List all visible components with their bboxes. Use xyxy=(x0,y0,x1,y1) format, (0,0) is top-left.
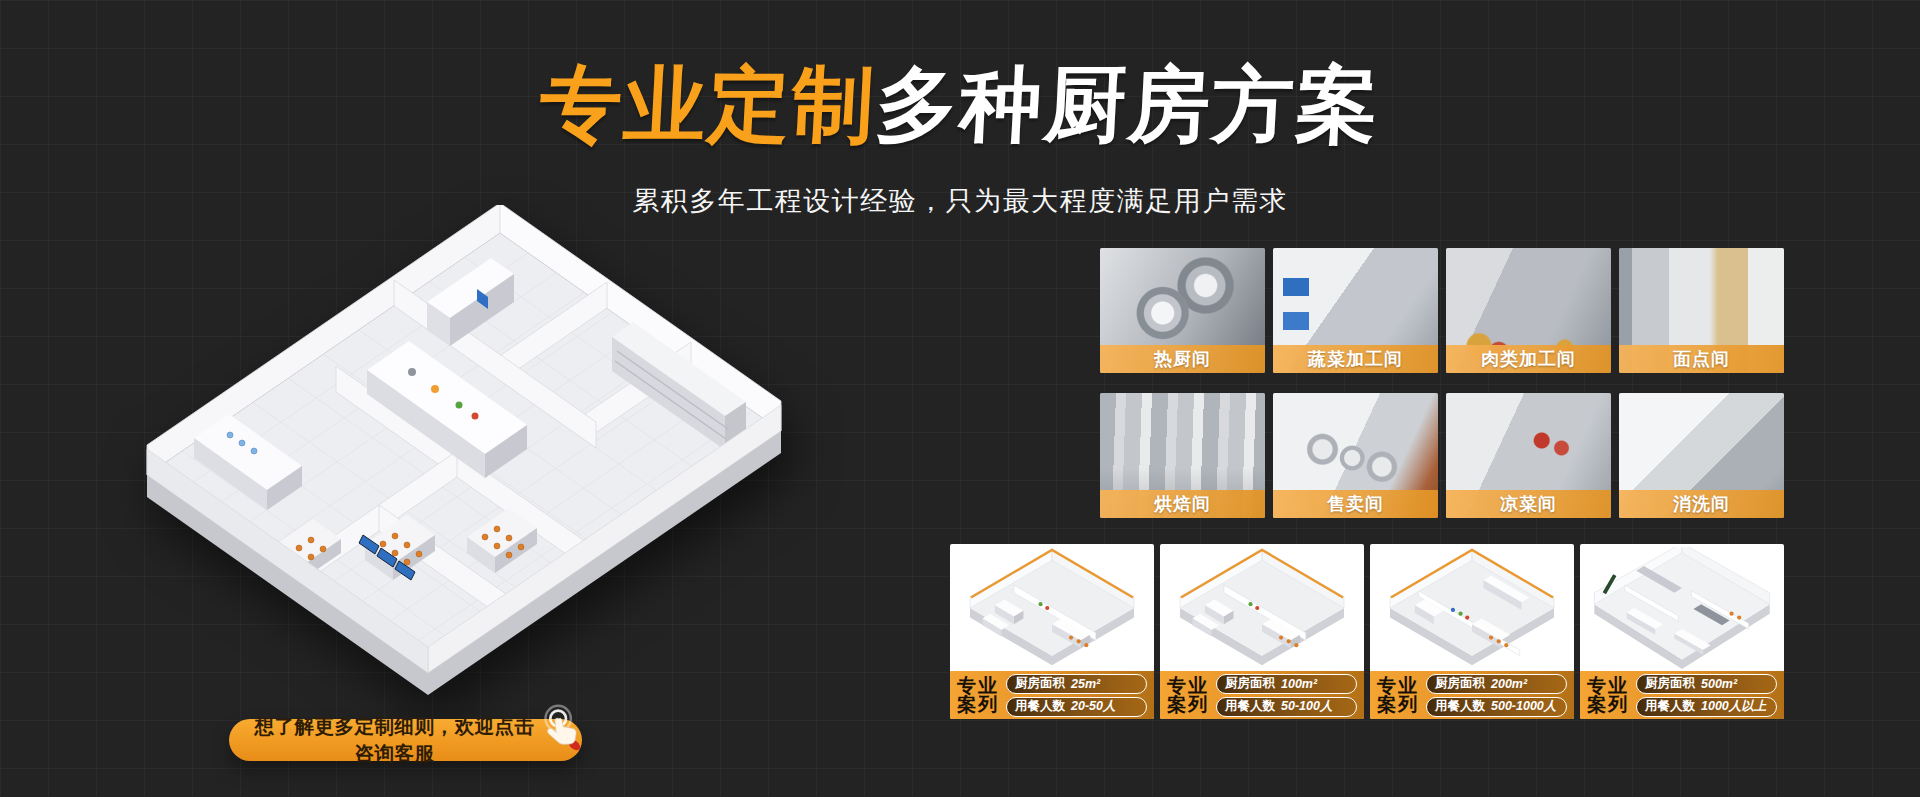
case-card-25: 专业案列 厨房面积25m² 用餐人数20-50人 xyxy=(950,544,1154,719)
case-badge-line: 专业 xyxy=(1377,676,1419,695)
kitchen-solutions-banner: 专业定制多种厨房方案 累积多年工程设计经验，只为最大程度满足用户需求 xyxy=(0,0,1920,797)
spec-label: 厨房面积 xyxy=(1225,675,1275,692)
case-render xyxy=(950,544,1154,671)
case-badge: 专业案列 xyxy=(1587,676,1629,715)
room-tile-pastry: 面点间 xyxy=(1619,248,1784,373)
room-tile-baking: 烘焙间 xyxy=(1100,393,1265,518)
case-badge: 专业案列 xyxy=(957,676,999,715)
spec-label: 厨房面积 xyxy=(1015,675,1065,692)
spec-label: 用餐人数 xyxy=(1645,698,1695,715)
case-badge-line: 案列 xyxy=(1587,695,1629,714)
floorplan-illustration xyxy=(125,205,805,735)
case-badge: 专业案列 xyxy=(1167,676,1209,715)
case-badge-line: 专业 xyxy=(1167,676,1209,695)
spec-value: 100m² xyxy=(1281,677,1317,691)
case-gallery: 专业案列 厨房面积25m² 用餐人数20-50人 xyxy=(950,544,1784,719)
case-card-200: 专业案列 厨房面积200m² 用餐人数500-1000人 xyxy=(1370,544,1574,719)
room-tile-meat-processing: 肉类加工间 xyxy=(1446,248,1611,373)
diners-pill: 用餐人数500-1000人 xyxy=(1426,697,1567,717)
room-label: 凉菜间 xyxy=(1446,490,1611,518)
case-badge-line: 案列 xyxy=(1167,695,1209,714)
case-card-100: 专业案列 厨房面积100m² 用餐人数50-100人 xyxy=(1160,544,1364,719)
isometric-kitchen-floorplan xyxy=(125,205,805,735)
kitchen-area-pill: 厨房面积200m² xyxy=(1426,674,1567,694)
case-footer: 专业案列 厨房面积200m² 用餐人数500-1000人 xyxy=(1370,671,1574,719)
room-label: 售卖间 xyxy=(1273,490,1438,518)
room-label: 消洗间 xyxy=(1619,490,1784,518)
page-title-rest: 多种厨房方案 xyxy=(874,59,1383,150)
spec-value: 50-100人 xyxy=(1281,698,1332,715)
kitchen-area-pill: 厨房面积100m² xyxy=(1216,674,1357,694)
case-badge-line: 专业 xyxy=(957,676,999,695)
room-label: 烘焙间 xyxy=(1100,490,1265,518)
room-tile-vegetable-processing: 蔬菜加工间 xyxy=(1273,248,1438,373)
spec-value: 25m² xyxy=(1071,677,1100,691)
hand-click-icon xyxy=(534,704,592,762)
room-tile-serving: 售卖间 xyxy=(1273,393,1438,518)
diners-pill: 用餐人数20-50人 xyxy=(1006,697,1147,717)
isometric-kitchen-render xyxy=(952,547,1152,669)
case-badge: 专业案列 xyxy=(1377,676,1419,715)
diners-pill: 用餐人数50-100人 xyxy=(1216,697,1357,717)
case-footer: 专业案列 厨房面积25m² 用餐人数20-50人 xyxy=(950,671,1154,719)
case-footer: 专业案列 厨房面积500m² 用餐人数1000人以上 xyxy=(1580,671,1784,719)
contact-service-label: 想了解更多定制细则，欢迎点击咨询客服 xyxy=(251,713,538,767)
kitchen-area-pill: 厨房面积25m² xyxy=(1006,674,1147,694)
room-label: 蔬菜加工间 xyxy=(1273,345,1438,373)
case-badge-line: 案列 xyxy=(1377,695,1419,714)
case-specs: 厨房面积200m² 用餐人数500-1000人 xyxy=(1426,674,1567,717)
kitchen-area-pill: 厨房面积500m² xyxy=(1636,674,1777,694)
case-card-500: 专业案列 厨房面积500m² 用餐人数1000人以上 xyxy=(1580,544,1784,719)
page-title-highlight: 专业定制 xyxy=(538,59,879,150)
case-render xyxy=(1160,544,1364,671)
room-tile-hot-kitchen: 热厨间 xyxy=(1100,248,1265,373)
case-specs: 厨房面积500m² 用餐人数1000人以上 xyxy=(1636,674,1777,717)
page-title: 专业定制多种厨房方案 xyxy=(0,58,1920,152)
case-badge-line: 专业 xyxy=(1587,676,1629,695)
spec-label: 用餐人数 xyxy=(1015,698,1065,715)
isometric-kitchen-render xyxy=(1162,547,1362,669)
case-specs: 厨房面积100m² 用餐人数50-100人 xyxy=(1216,674,1357,717)
spec-value: 500-1000人 xyxy=(1491,698,1556,715)
spec-value: 500m² xyxy=(1701,677,1737,691)
case-footer: 专业案列 厨房面积100m² 用餐人数50-100人 xyxy=(1160,671,1364,719)
isometric-kitchen-render xyxy=(1372,547,1572,669)
room-tile-dishwashing: 消洗间 xyxy=(1619,393,1784,518)
contact-service-button[interactable]: 想了解更多定制细则，欢迎点击咨询客服 xyxy=(229,719,582,761)
case-specs: 厨房面积25m² 用餐人数20-50人 xyxy=(1006,674,1147,717)
room-gallery: 热厨间 蔬菜加工间 肉类加工间 面点间 烘焙间 售卖间 凉菜间 消洗间 xyxy=(1100,248,1784,518)
spec-value: 200m² xyxy=(1491,677,1527,691)
spec-label: 厨房面积 xyxy=(1435,675,1485,692)
spec-value: 20-50人 xyxy=(1071,698,1115,715)
spec-value: 1000人以上 xyxy=(1701,698,1766,715)
room-label: 面点间 xyxy=(1619,345,1784,373)
case-render xyxy=(1370,544,1574,671)
spec-label: 厨房面积 xyxy=(1645,675,1695,692)
spec-label: 用餐人数 xyxy=(1225,698,1275,715)
case-render xyxy=(1580,544,1784,671)
case-badge-line: 案列 xyxy=(957,695,999,714)
room-label: 肉类加工间 xyxy=(1446,345,1611,373)
room-tile-cold-dish: 凉菜间 xyxy=(1446,393,1611,518)
isometric-kitchen-render xyxy=(1582,547,1782,669)
room-label: 热厨间 xyxy=(1100,345,1265,373)
diners-pill: 用餐人数1000人以上 xyxy=(1636,697,1777,717)
spec-label: 用餐人数 xyxy=(1435,698,1485,715)
